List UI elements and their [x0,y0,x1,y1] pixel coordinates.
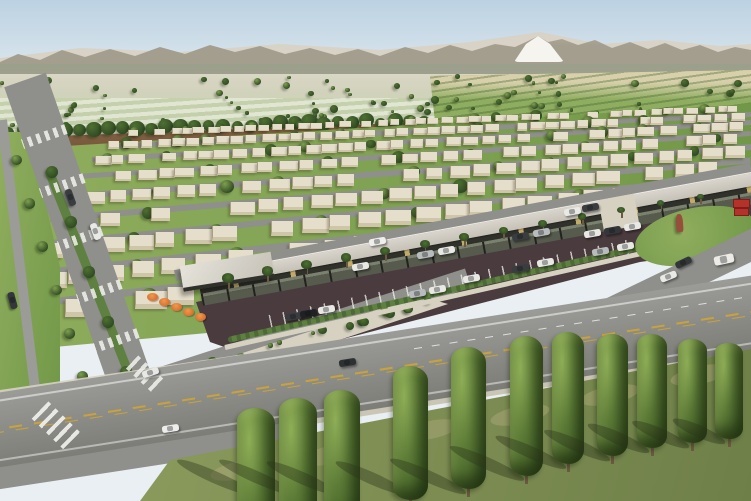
house [577,120,588,128]
poplar-tree [324,390,360,501]
palm-tree [222,273,234,283]
house [545,175,564,188]
house [151,208,169,221]
house [162,153,176,162]
car-roof [516,265,523,271]
house [128,130,138,136]
house [723,134,737,144]
house [159,168,176,178]
house [242,181,260,193]
house [329,215,350,230]
car-roof [596,248,603,254]
tree [496,99,502,105]
house [110,190,126,202]
tree [556,91,562,96]
house [310,123,322,129]
house [498,135,511,144]
house [441,126,455,134]
house [686,108,698,114]
tree [102,316,114,327]
house [381,155,396,165]
house [241,163,257,173]
house [285,124,294,130]
house [545,122,558,130]
house [441,117,453,123]
house [272,124,282,130]
house [199,184,216,196]
house [341,157,358,167]
tree [468,83,471,86]
house [413,128,427,136]
house [686,136,703,146]
house [531,114,541,120]
tree [538,103,545,109]
house [567,157,582,169]
tree [0,81,4,85]
patio-umbrella [159,298,170,306]
palm-tree [262,266,274,275]
house [494,180,515,193]
house [111,155,123,164]
tree [511,90,517,96]
house [517,134,530,143]
car-roof [719,255,727,263]
palm-tree [499,227,508,234]
house [470,125,482,133]
tree [103,107,106,110]
house [693,124,710,133]
house [530,122,544,130]
car-roof [91,227,98,234]
house [697,115,710,123]
house [183,151,197,160]
tree [103,94,107,97]
house [711,123,728,132]
house [673,108,682,114]
house [306,145,322,154]
tree [287,76,290,79]
house [473,164,490,176]
house [269,179,289,191]
tree [394,83,400,89]
house [338,143,353,152]
tree [424,109,430,115]
house [258,199,278,212]
tree [216,90,223,96]
tree [348,93,351,96]
house [642,139,658,149]
car-roof [467,275,474,281]
palm-trunk [700,199,702,204]
house [321,144,337,153]
house [416,207,441,222]
house [702,148,722,160]
house [603,141,617,151]
car-roof [608,227,615,233]
palm-tree [578,213,586,220]
house [202,137,214,145]
house [138,170,156,180]
poplar-tree [715,343,743,439]
house [467,182,485,195]
house [456,117,469,123]
house [485,124,499,132]
house [645,167,663,180]
house [610,111,622,117]
house [659,151,675,163]
car-roof [421,251,428,257]
house [217,165,232,175]
palm-trunk [621,213,623,219]
house [292,177,313,189]
tree [71,103,76,108]
house [212,226,238,241]
house [339,121,351,127]
tree [681,79,688,86]
house [200,166,217,176]
house [385,210,411,225]
house [553,132,568,141]
house [515,178,537,191]
palm-trunk [503,233,505,239]
palm-trunk [582,220,584,226]
house [299,160,313,170]
tree [631,80,638,87]
house [425,139,438,148]
tree [454,97,459,102]
house [517,123,527,131]
house [702,135,716,145]
house [396,128,408,136]
house [158,139,172,147]
house [463,150,482,160]
tree [570,108,573,111]
house [320,132,332,140]
tree [100,117,104,121]
house [288,146,301,155]
house [727,106,737,112]
house [581,143,599,153]
tree [24,198,35,208]
car-roof [413,290,420,296]
car-roof [664,273,672,280]
tree [46,166,58,177]
palm-tree [538,220,547,227]
house [213,150,229,159]
house [621,140,637,150]
house [637,127,653,136]
house [271,221,293,236]
tree [417,105,424,112]
car-roof [66,193,73,200]
tree [707,89,712,94]
house [230,202,254,215]
house [378,120,388,126]
house [663,108,673,114]
tree [455,74,460,79]
house [321,159,336,169]
car-roof [343,359,350,365]
house [427,127,439,135]
tree [504,92,511,98]
patio-umbrella [171,303,182,311]
car-roof [541,259,548,265]
tree [366,140,375,149]
tree [220,180,234,193]
tree [431,96,439,104]
car-roof [166,425,173,431]
house [154,129,165,135]
tree [548,78,554,84]
house [283,197,303,210]
house [128,154,145,163]
house [426,168,442,180]
car-roof [373,238,380,244]
tree [222,78,229,85]
patio-umbrella [147,293,158,301]
tree [425,102,429,106]
house [410,139,423,148]
house [503,147,518,157]
car-roof [322,306,329,312]
house [220,126,230,132]
house [361,121,371,127]
car-roof [586,204,593,210]
palm-tree [697,194,704,200]
house [364,130,374,138]
house [482,136,495,145]
tree [637,102,640,105]
tree [93,85,99,91]
patio-umbrella [195,313,206,321]
house [177,185,195,197]
house [650,117,663,125]
house [622,128,636,137]
house [572,173,594,186]
house [279,161,298,171]
tree [65,216,77,227]
palm-tree [341,253,352,262]
car-roof [356,263,363,269]
house [278,134,291,142]
house [660,126,677,135]
tree [132,88,137,93]
tree [346,322,354,330]
house [547,113,559,119]
car-roof [304,310,311,316]
house [731,113,745,121]
house [610,154,628,166]
house [216,136,229,144]
house [403,169,419,181]
house [725,146,745,158]
house [560,121,575,129]
house [677,150,692,162]
house [337,174,354,186]
sign-red [733,199,750,208]
house [596,171,620,184]
house [100,213,119,226]
tree [254,78,261,85]
tree [531,102,538,109]
aerial-render-scene [0,0,751,501]
tree [330,105,338,113]
house [390,119,399,125]
house [262,134,276,142]
palm-trunk [661,206,663,211]
house [115,171,131,181]
house [155,232,174,247]
house [192,127,204,133]
house [521,146,536,156]
house [302,218,329,233]
house [174,168,193,178]
tree [268,343,272,347]
car-roof [588,230,595,236]
tree [201,77,206,82]
house [172,128,182,134]
house [245,125,256,131]
tree [245,111,248,114]
tree [730,89,735,94]
house [232,149,247,158]
house [335,193,357,206]
tree [86,122,101,137]
house [108,141,119,149]
car-roof [146,369,153,376]
tree [230,101,233,104]
house [714,114,726,122]
house [443,151,458,161]
house [457,126,470,134]
house [132,189,151,201]
house [589,130,605,139]
tree [51,285,62,295]
house [446,137,461,146]
house [390,140,403,149]
tree [561,74,566,79]
house [258,125,270,131]
house [123,141,137,149]
car-roof [537,229,544,235]
palm-tree [459,233,469,241]
car-roof [442,247,449,253]
house [496,163,516,175]
tree [538,91,541,94]
house [506,115,518,121]
house [389,188,412,201]
house [234,126,244,132]
house [129,235,154,250]
tree [525,75,532,81]
house [325,122,334,128]
house [208,127,220,133]
house [591,156,609,168]
house [358,212,380,227]
house [427,118,438,124]
poplar-tree [451,347,486,489]
tree [409,94,413,98]
house [252,148,265,157]
tree [10,123,14,127]
car-roof [621,243,628,249]
house [414,186,436,199]
house [354,142,366,151]
house [303,132,315,140]
tree [83,266,95,277]
house [729,122,743,131]
house [634,153,654,165]
car-roof [433,286,440,292]
house [705,107,715,113]
house [562,144,578,154]
car-roof [679,259,687,266]
house [186,138,199,146]
house [314,176,331,188]
house [95,156,112,165]
house [141,140,152,148]
house [172,138,185,146]
house [450,166,471,178]
palm-tree [420,240,430,248]
house [481,116,491,122]
house [257,162,271,172]
house [420,152,437,162]
house [230,136,242,144]
house [185,229,212,244]
car-roof [9,296,15,303]
house [415,118,426,124]
house [298,123,310,129]
house [361,191,384,204]
house [607,119,618,127]
tree [283,82,290,89]
car-roof [289,313,296,319]
house [384,129,395,137]
house [153,187,170,199]
house [541,159,560,171]
house [132,261,154,277]
tree [277,340,281,344]
house [311,195,334,208]
sign-red [734,208,749,216]
house [271,147,287,156]
house [463,137,479,146]
tree [308,91,314,97]
house [521,161,539,173]
tree [734,80,741,87]
house [495,115,507,121]
tree [11,155,22,165]
house [290,133,302,141]
palm-tree [301,260,312,269]
patio-umbrella [183,308,194,316]
house [559,113,570,119]
house [440,184,458,197]
house [335,131,349,139]
car-roof [568,208,575,214]
house [622,110,632,116]
tree [64,328,75,338]
house [245,135,256,143]
tree [37,241,48,251]
palm-trunk [464,240,466,247]
house [651,109,661,115]
house [545,145,561,155]
car-roof [516,233,523,239]
house [402,154,418,164]
house [198,151,213,160]
